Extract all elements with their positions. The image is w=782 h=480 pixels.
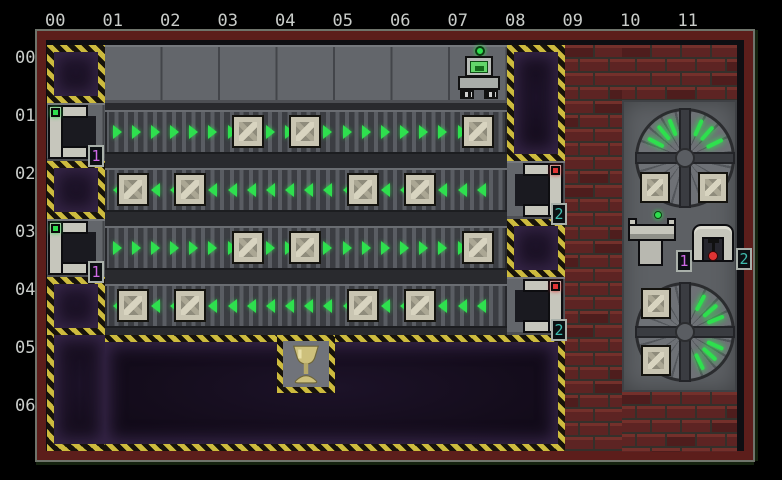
robot-body	[458, 76, 500, 90]
device-number-tag: 2	[551, 319, 567, 341]
floor-tile	[105, 45, 508, 103]
row-label: 00	[15, 49, 39, 67]
belt-arrow-right	[151, 125, 160, 139]
belt-arrow-right	[132, 241, 141, 255]
belt-arrow-right	[208, 241, 217, 255]
belt-arrow-left	[438, 183, 447, 197]
belt-arrow-left	[266, 299, 275, 313]
legend-dispenser[interactable]: 1	[628, 220, 678, 266]
hazard-pit	[47, 45, 105, 103]
belt-arrow-left	[151, 183, 160, 197]
robot-foot	[460, 90, 474, 99]
crate[interactable]	[641, 288, 671, 319]
crate[interactable]	[347, 289, 379, 322]
row-label: 01	[15, 107, 39, 125]
belt-arrow-right	[438, 241, 447, 255]
column-label: 07	[448, 12, 472, 30]
red-led	[551, 166, 560, 175]
legend-press[interactable]: 2	[692, 224, 736, 266]
belt-arrow-right	[343, 125, 352, 139]
game-board: 1 2 1122	[47, 45, 737, 451]
row-label: 06	[15, 397, 39, 415]
belt-arrow-left	[381, 299, 390, 313]
belt-arrow-right	[266, 125, 275, 139]
belt-arrow-right	[381, 241, 390, 255]
crate[interactable]	[289, 115, 321, 148]
green-led	[51, 224, 60, 233]
belt-arrow-left	[304, 183, 313, 197]
row-label: 05	[15, 339, 39, 357]
column-label: 02	[160, 12, 184, 30]
hazard-pit	[47, 335, 105, 451]
conveyor-belt-left	[105, 277, 508, 335]
side-panel: 1 2	[622, 100, 737, 392]
hazard-pit	[47, 161, 105, 219]
hazard-pit	[105, 335, 565, 451]
belt-arrow-right	[438, 125, 447, 139]
robot-foot	[484, 90, 498, 99]
game-screen: 000102030405060708091011 00010203040506	[0, 0, 782, 480]
device-number-tag: 1	[88, 145, 104, 167]
receiver-door[interactable]: 2	[511, 163, 563, 217]
belt-arrow-left	[304, 299, 313, 313]
column-label: 03	[218, 12, 242, 30]
belt-arrow-right	[113, 125, 122, 139]
crate[interactable]	[174, 173, 206, 206]
crate[interactable]	[174, 289, 206, 322]
crate[interactable]	[640, 172, 670, 203]
device-cavity	[515, 174, 550, 206]
brick-wall	[622, 392, 737, 451]
belt-arrow-left	[228, 183, 237, 197]
dispenser-chute[interactable]: 1	[48, 221, 100, 275]
crate[interactable]	[698, 172, 728, 203]
crate[interactable]	[117, 289, 149, 322]
belt-arrow-left	[208, 299, 217, 313]
green-led	[51, 108, 60, 117]
belt-arrow-left	[323, 183, 332, 197]
belt-arrow-left	[477, 299, 486, 313]
belt-arrow-right	[400, 125, 409, 139]
legend-number-1: 1	[676, 250, 692, 272]
belt-arrow-left	[266, 183, 275, 197]
legend-number-2: 2	[736, 248, 752, 270]
crate[interactable]	[641, 345, 671, 376]
column-label: 04	[275, 12, 299, 30]
belt-arrow-right	[362, 125, 371, 139]
fan-hub	[675, 148, 695, 168]
device-cavity	[61, 232, 96, 264]
belt-arrow-right	[343, 241, 352, 255]
belt-arrow-left	[247, 299, 256, 313]
belt-arrow-right	[151, 241, 160, 255]
belt-arrow-left	[458, 299, 467, 313]
hopper-bin	[638, 239, 663, 266]
hazard-pit	[507, 45, 565, 161]
belt-arrow-right	[208, 125, 217, 139]
column-label: 11	[678, 12, 702, 30]
green-indicator-dot	[654, 211, 662, 219]
belt-arrow-right	[323, 125, 332, 139]
crate[interactable]	[347, 173, 379, 206]
column-label: 08	[505, 12, 529, 30]
red-ball-icon	[708, 251, 718, 261]
robot-screen	[470, 61, 488, 73]
column-label: 09	[563, 12, 587, 30]
crate[interactable]	[232, 231, 264, 264]
device-number-tag: 1	[88, 261, 104, 283]
belt-arrow-right	[132, 125, 141, 139]
goblet-icon	[288, 344, 324, 384]
robot-head	[465, 56, 493, 77]
goal-tile[interactable]	[277, 335, 335, 393]
device-number-tag: 2	[551, 203, 567, 225]
column-label: 05	[333, 12, 357, 30]
belt-arrow-right	[323, 241, 332, 255]
belt-arrow-left	[151, 299, 160, 313]
red-led	[551, 282, 560, 291]
row-label: 02	[15, 165, 39, 183]
belt-arrow-right	[362, 241, 371, 255]
belt-arrow-left	[247, 183, 256, 197]
hazard-pit	[47, 277, 105, 335]
belt-arrow-right	[381, 125, 390, 139]
belt-arrow-right	[419, 241, 428, 255]
crate[interactable]	[289, 231, 321, 264]
belt-arrow-left	[208, 183, 217, 197]
crate[interactable]	[232, 115, 264, 148]
belt-arrow-left	[438, 299, 447, 313]
robot[interactable]	[450, 45, 508, 103]
belt-arrow-right	[113, 241, 122, 255]
belt-arrow-left	[381, 183, 390, 197]
hazard-pit	[507, 219, 565, 277]
column-label: 01	[103, 12, 127, 30]
robot-antenna	[475, 46, 485, 56]
belt-arrow-right	[189, 241, 198, 255]
crate[interactable]	[462, 231, 494, 264]
crate[interactable]	[117, 173, 149, 206]
crate[interactable]	[462, 115, 494, 148]
brick-wall	[622, 45, 737, 100]
row-label: 03	[15, 223, 39, 241]
brick-wall	[565, 45, 623, 451]
fan-hub	[675, 322, 695, 342]
column-label: 06	[390, 12, 414, 30]
robot-face	[475, 66, 484, 71]
device-cavity	[515, 290, 550, 322]
belt-arrow-left	[477, 183, 486, 197]
row-label: 04	[15, 281, 39, 299]
belt-arrow-left	[285, 299, 294, 313]
device-cavity	[61, 116, 96, 148]
belt-arrow-left	[285, 183, 294, 197]
belt-arrow-right	[419, 125, 428, 139]
belt-arrow-right	[170, 125, 179, 139]
belt-arrow-right	[189, 125, 198, 139]
column-label: 00	[45, 12, 69, 30]
belt-arrow-right	[170, 241, 179, 255]
belt-arrow-left	[458, 183, 467, 197]
receiver-door[interactable]: 2	[511, 279, 563, 333]
belt-arrow-left	[323, 299, 332, 313]
crate[interactable]	[404, 289, 436, 322]
column-label: 10	[620, 12, 644, 30]
belt-arrow-right	[400, 241, 409, 255]
conveyor-belt-left	[105, 161, 508, 219]
crate[interactable]	[404, 173, 436, 206]
belt-arrow-right	[266, 241, 275, 255]
belt-arrow-left	[228, 299, 237, 313]
dispenser-chute[interactable]: 1	[48, 105, 100, 159]
